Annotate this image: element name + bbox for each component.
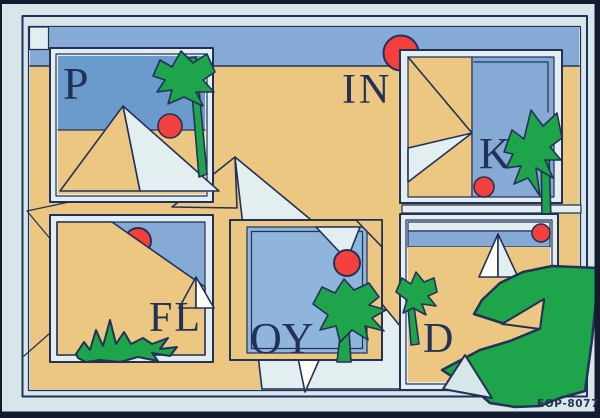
sun-icon-small bbox=[532, 224, 550, 242]
sun-icon-small bbox=[474, 177, 494, 197]
panel-k: K bbox=[400, 50, 562, 220]
panel-margin-band bbox=[408, 222, 550, 231]
print-code: EOP-80778 bbox=[537, 398, 600, 410]
artwork-canvas: FL OY P IN K bbox=[0, 0, 600, 418]
sun-icon bbox=[334, 250, 360, 276]
sun-icon bbox=[158, 114, 182, 138]
letter-oy: OY bbox=[250, 314, 314, 363]
photo-edge-right bbox=[595, 0, 600, 418]
letter-fl: FL bbox=[149, 295, 202, 341]
letter-d: D bbox=[423, 316, 453, 362]
letter-k: K bbox=[479, 129, 511, 178]
letter-in: IN bbox=[342, 67, 392, 113]
sheet-edge-stripe bbox=[402, 205, 581, 213]
sheet-step-corner bbox=[30, 27, 49, 50]
photo-edge-bottom bbox=[0, 412, 600, 418]
panel-sky bbox=[408, 231, 550, 247]
photo-edge-left bbox=[0, 0, 2, 418]
photographed-art-card: FL OY P IN K bbox=[0, 0, 600, 418]
panel-p: P bbox=[50, 48, 219, 202]
panel-oy: OY bbox=[230, 220, 386, 363]
panel-fl: FL bbox=[50, 215, 214, 362]
letter-p: P bbox=[63, 58, 89, 109]
panel-fold-sheet bbox=[408, 57, 472, 197]
photo-edge-top bbox=[0, 0, 600, 4]
